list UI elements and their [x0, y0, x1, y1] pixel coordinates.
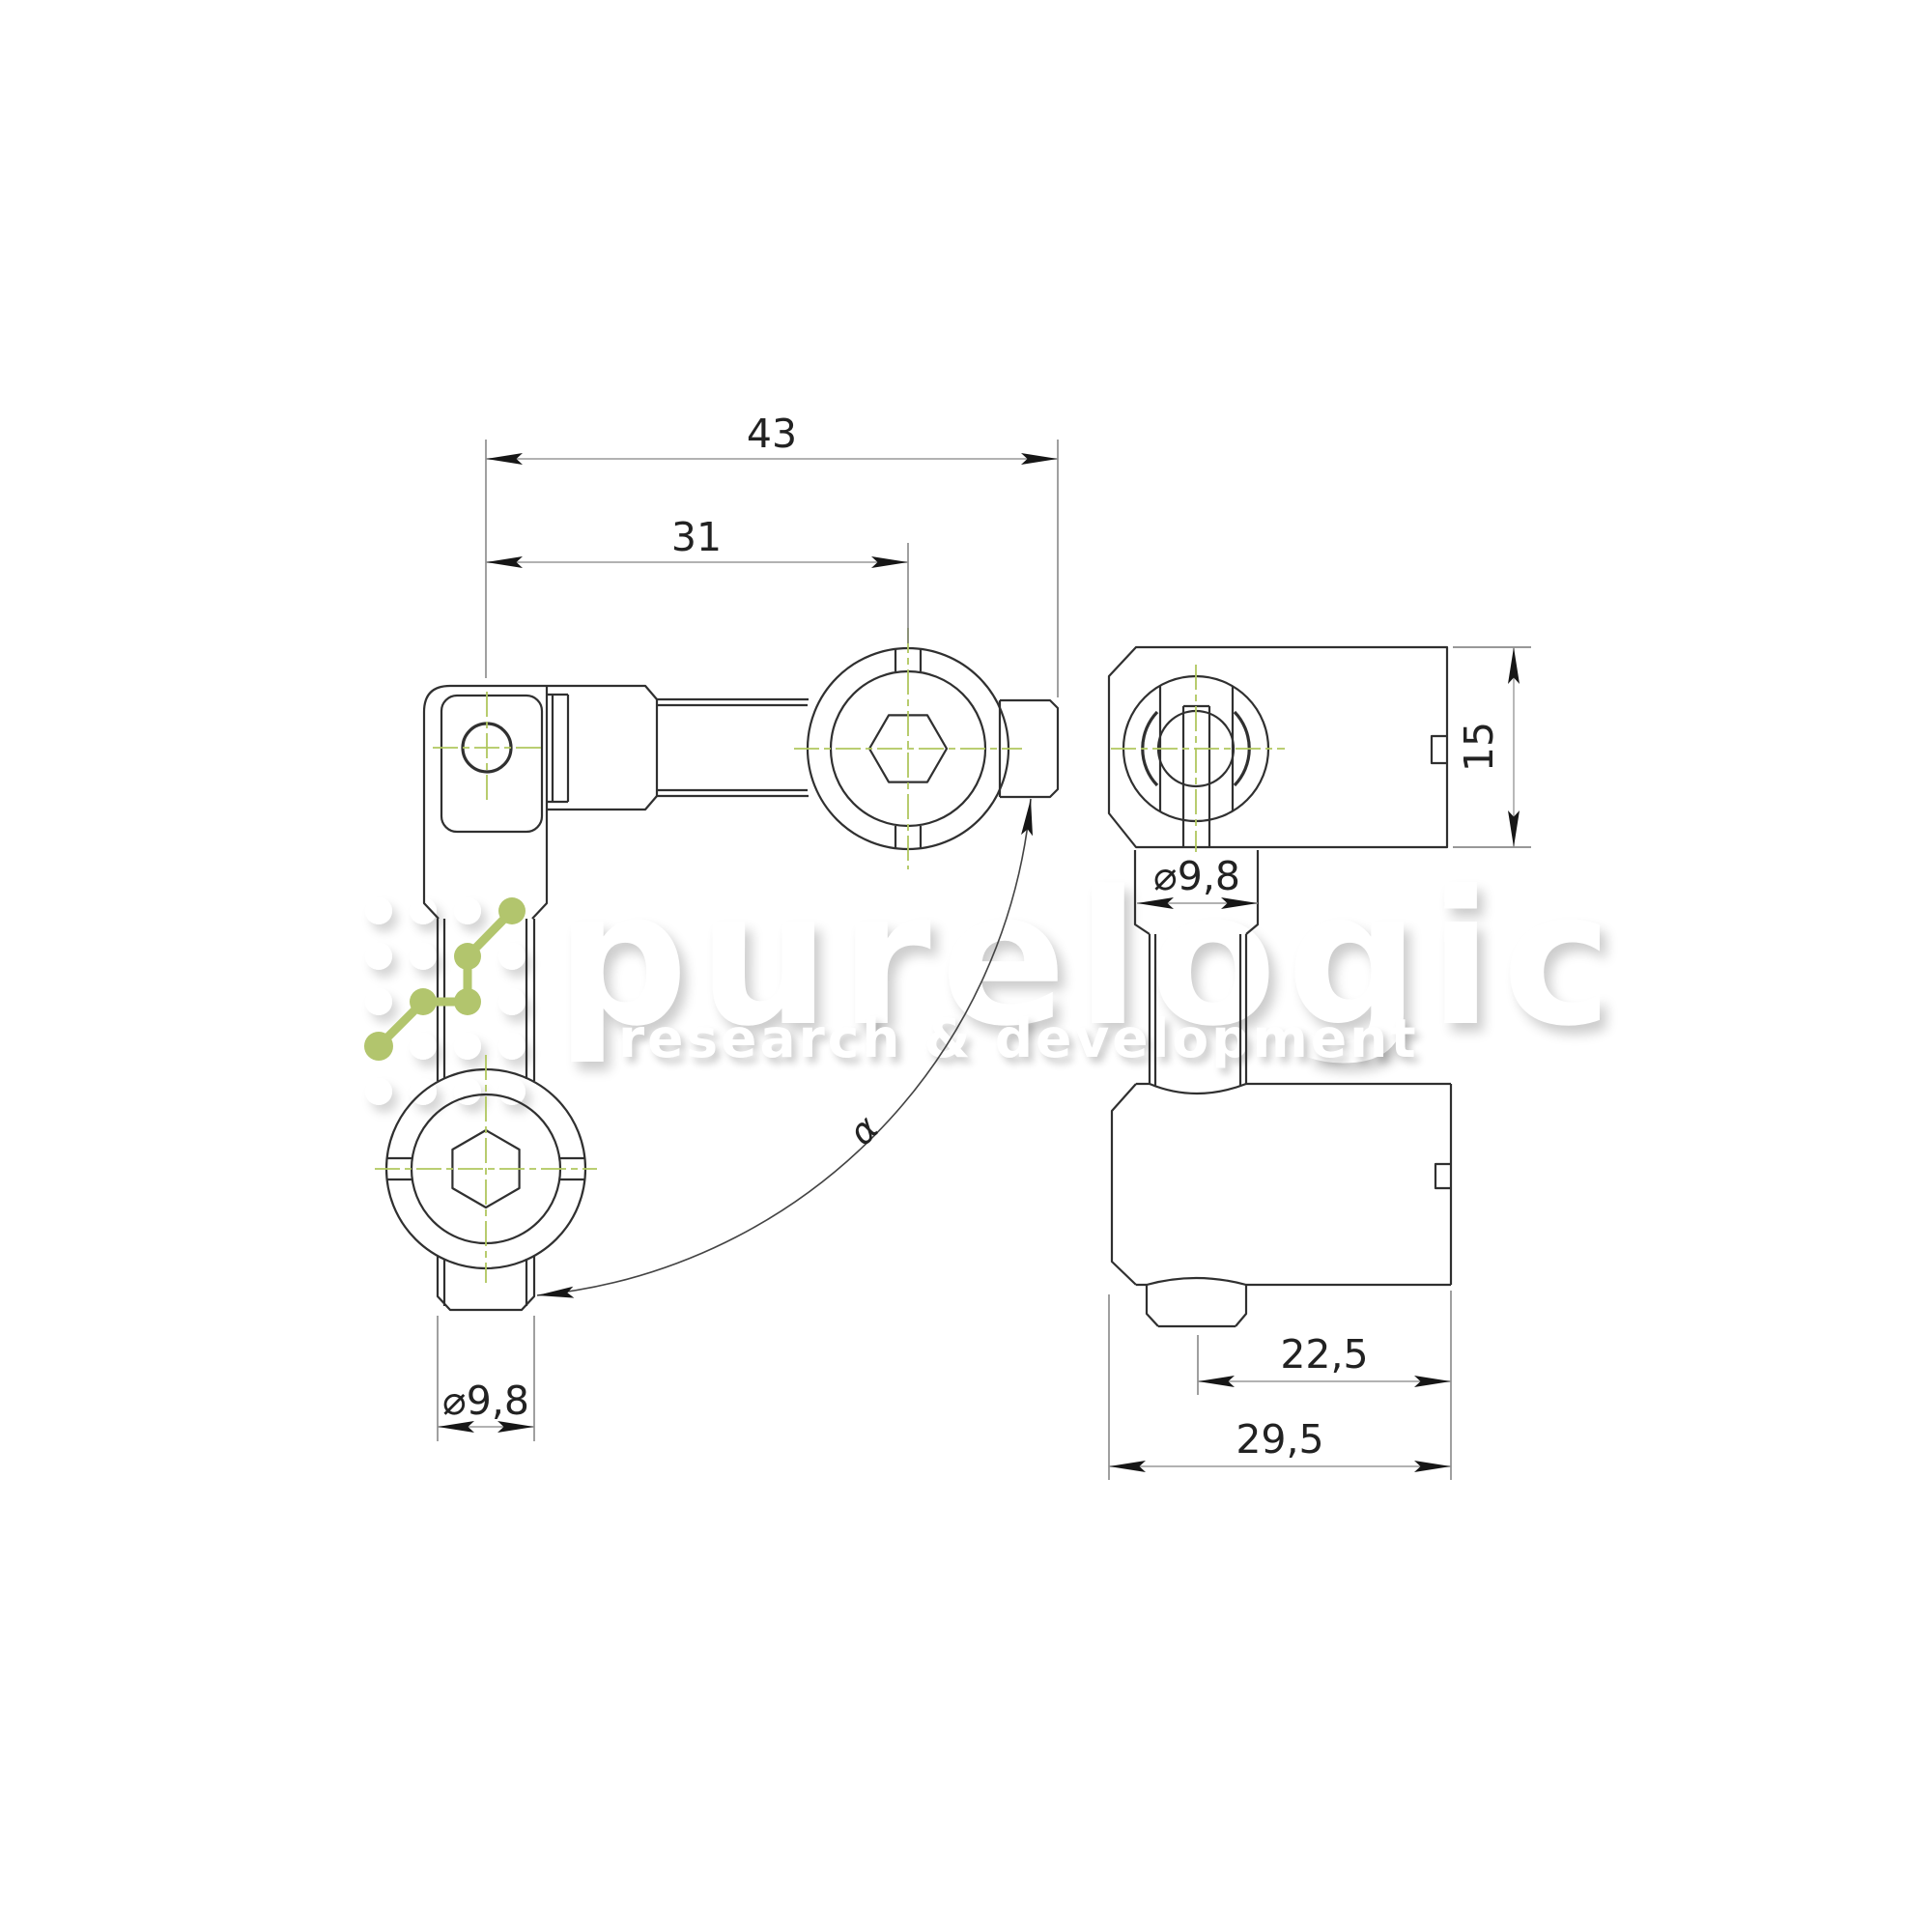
dim-swivel-angle-label: α [840, 1107, 887, 1153]
lower-housing-bottom [1136, 1278, 1451, 1285]
upper-housing-notch [1432, 736, 1447, 763]
lower-housing-top [1136, 1084, 1451, 1094]
clamp-block-right-edge [532, 686, 547, 919]
dim-housing-width: 29,5 [1109, 1416, 1451, 1472]
arrow-icon [536, 1287, 574, 1301]
dim-axis-to-edge-label: 22,5 [1280, 1331, 1368, 1378]
centerline-pivot-hole [433, 692, 541, 805]
dim-overall-length: 43 [486, 411, 1058, 465]
lower-housing-left [1112, 1084, 1136, 1285]
dim-stud-diameter-front: ⌀9,8 [438, 1378, 534, 1433]
arrow-icon [1021, 798, 1037, 836]
extension-lines [438, 440, 1531, 1480]
dim-housing-height: 15 [1456, 647, 1520, 847]
dim-stud-diameter-side-label: ⌀9,8 [1153, 853, 1240, 899]
lower-housing-notch [1435, 1164, 1451, 1188]
dim-axis-to-edge: 22,5 [1198, 1331, 1451, 1387]
shaft-horizontal [657, 699, 809, 796]
swivel-arc [537, 799, 1031, 1295]
dim-axis-to-ball: 31 [486, 514, 908, 568]
dim-overall-length-label: 43 [747, 411, 797, 457]
centerline-ball-right [794, 628, 1022, 869]
dim-axis-to-ball-label: 31 [671, 514, 722, 560]
drawing-sheet: purelogic research & development [0, 0, 1932, 1932]
lower-stud-boss [1147, 1285, 1246, 1326]
dim-housing-height-label: 15 [1456, 722, 1502, 772]
dim-stud-diameter-front-label: ⌀9,8 [442, 1378, 529, 1424]
stud-shaft [1150, 934, 1246, 1086]
dim-swivel-angle: α [536, 798, 1036, 1301]
dim-stud-diameter-side: ⌀9,8 [1137, 853, 1258, 909]
dim-housing-width-label: 29,5 [1236, 1416, 1323, 1463]
centerline-socket-side [1111, 665, 1285, 852]
clamp-block-outline [424, 686, 657, 919]
clamp-inner-face [441, 696, 542, 832]
centerline-ball-bottom [375, 1055, 597, 1283]
drawing-svg: 43 31 ⌀9,8 15 ⌀9,8 [0, 0, 1932, 1932]
clamp-slot [547, 695, 568, 802]
